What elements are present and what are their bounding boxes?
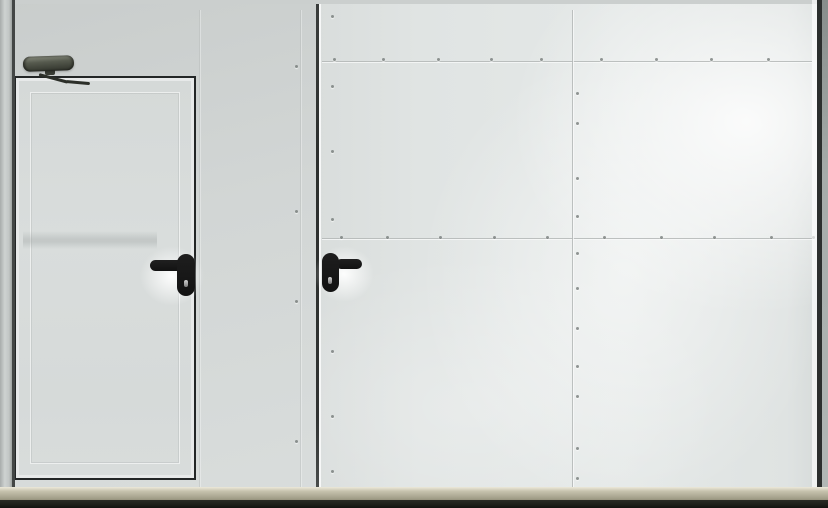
door-closer-body (23, 55, 74, 72)
wicket-handle-plate (177, 254, 195, 296)
wicket-door-seam-band (23, 231, 157, 249)
gate-frame-left-line (12, 0, 15, 508)
mid-panel-seam (300, 10, 301, 487)
wicket-keyhole (184, 280, 188, 287)
panel-seam-vertical (572, 10, 573, 487)
gate-frame-left (0, 0, 12, 508)
panel-seam-horizontal-middle (322, 238, 812, 239)
industrial-doors-photo (0, 0, 828, 508)
bottom-sill (0, 487, 828, 501)
gate-frame-right (822, 0, 828, 508)
floor-shadow (0, 500, 828, 508)
gate-frame-top (0, 3, 828, 9)
leaf-handle-plate (322, 253, 339, 292)
leaf-handle-lever (336, 259, 362, 269)
leaf-keyhole (328, 277, 332, 284)
panel-seam-horizontal-top (322, 61, 812, 62)
